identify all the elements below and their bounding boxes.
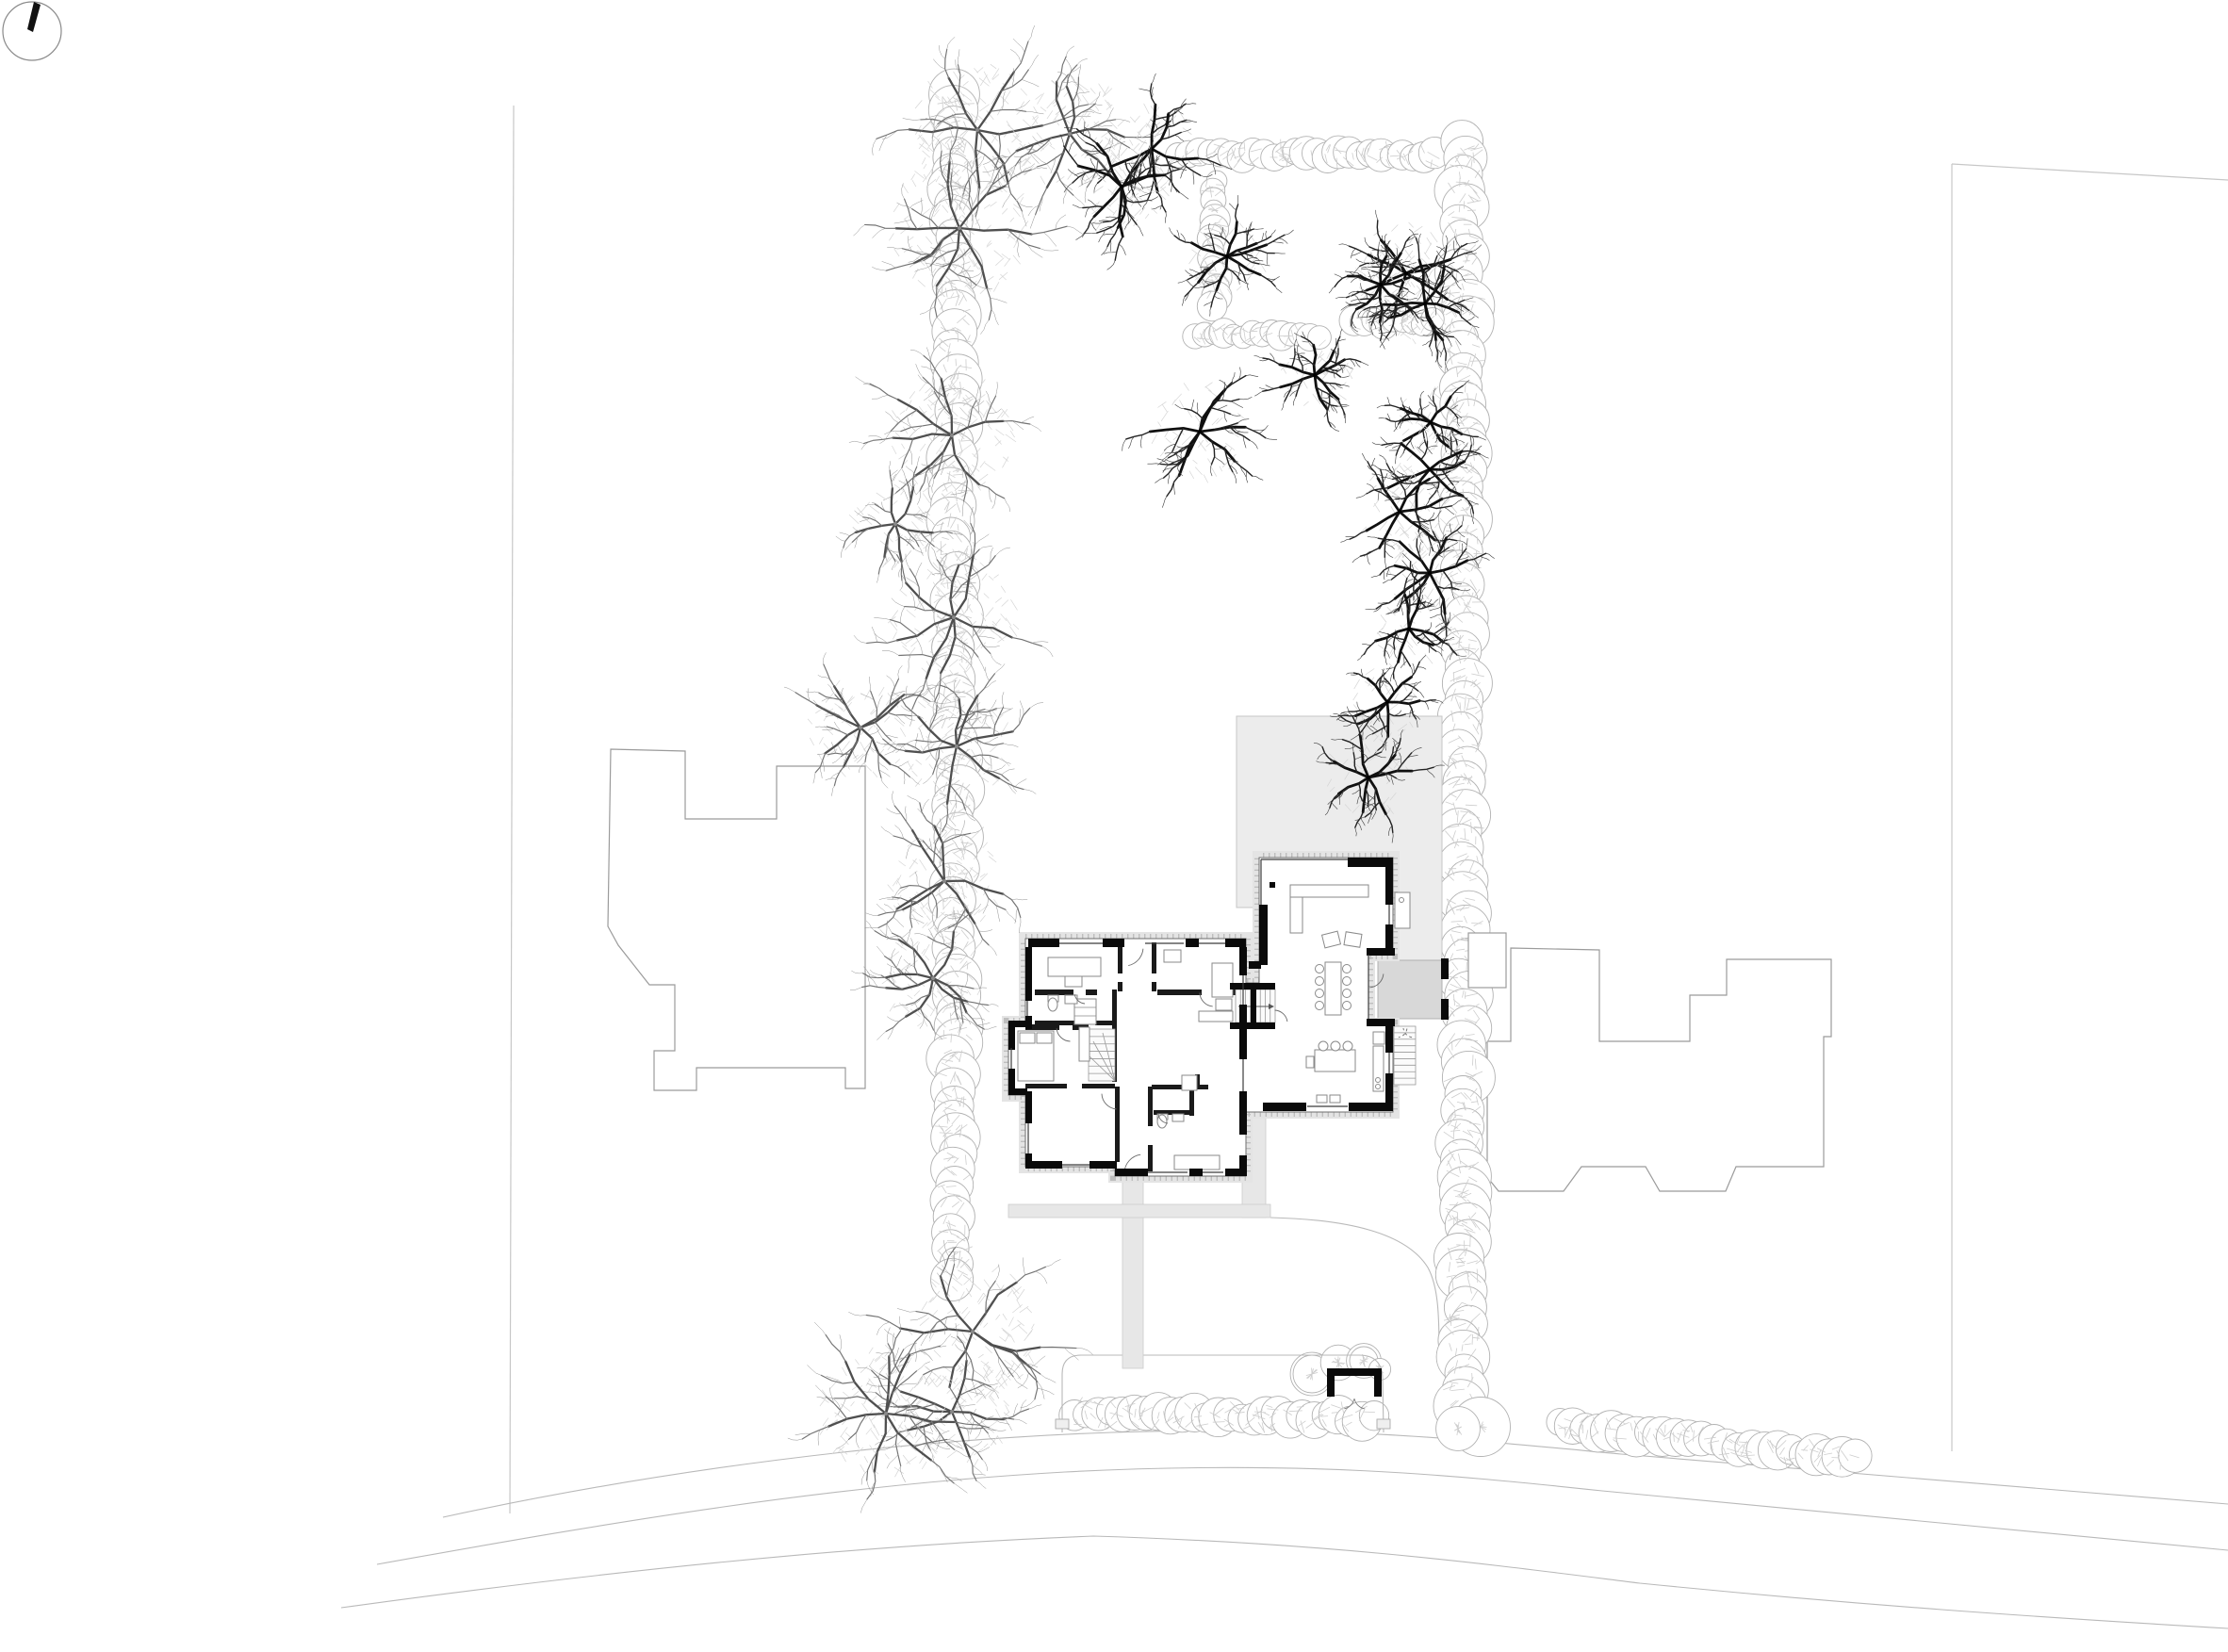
garden-path	[1122, 1174, 1143, 1368]
bin-shed-wall	[1374, 1368, 1382, 1397]
garden-path	[1008, 1204, 1270, 1218]
east-terrace-square	[1378, 960, 1442, 1019]
north-arrow-icon	[3, 2, 61, 60]
neighbor-building-outline	[1487, 948, 1831, 1191]
neighbor-annex	[1468, 933, 1506, 988]
site-plan	[0, 0, 2228, 1652]
neighbor-building-outline	[608, 749, 865, 1090]
bin-shed-wall	[1327, 1368, 1335, 1397]
bin-shed-wall	[1327, 1368, 1382, 1376]
site-plan-svg	[0, 0, 2228, 1652]
